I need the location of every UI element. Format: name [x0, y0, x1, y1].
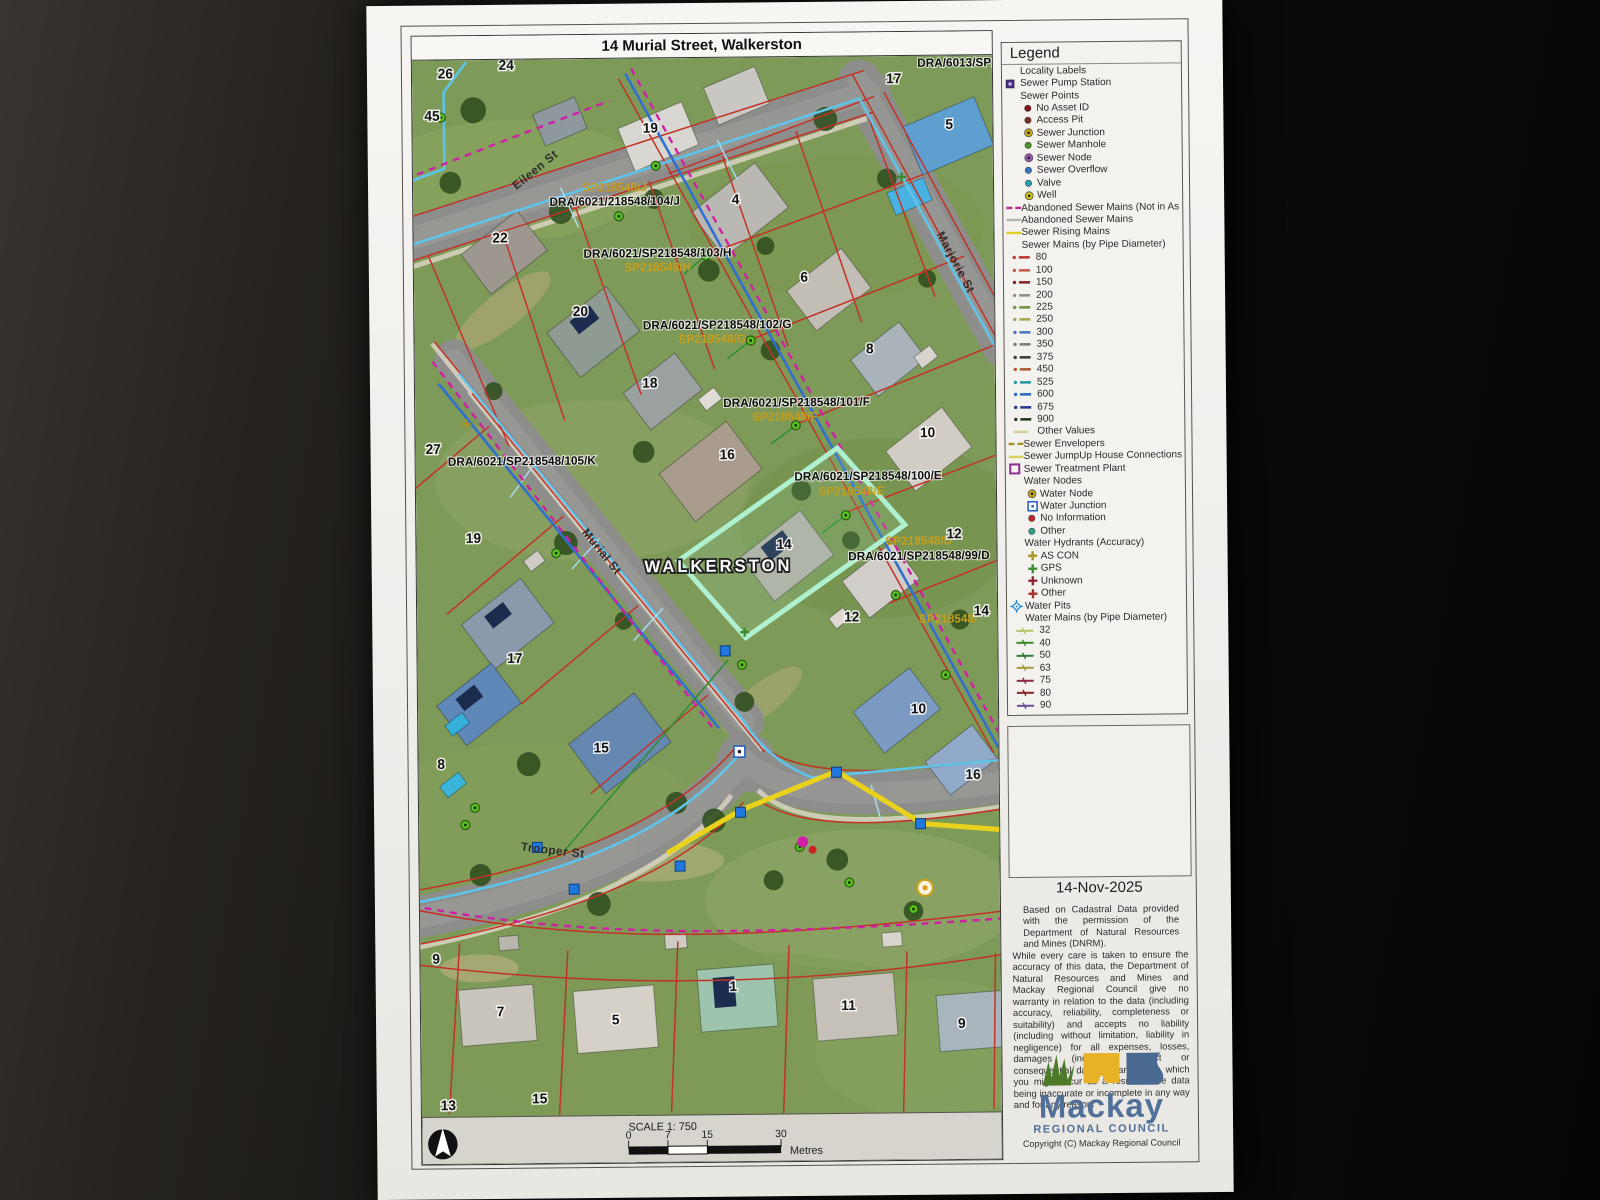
- 675-icon: [1013, 403, 1037, 410]
- gps-icon: [1028, 563, 1041, 573]
- lot-number: 8: [866, 340, 874, 356]
- plan-label: DRA/6013/SP208541/72/R: [917, 55, 1002, 70]
- 525-icon: [1013, 378, 1037, 385]
- lot-number: 10: [911, 700, 927, 716]
- sewer-manhole-marker-center: [848, 881, 851, 884]
- 40-icon: [1015, 639, 1039, 647]
- legend-item-label: No Information: [1040, 513, 1106, 525]
- plan-label: DRA/6021/SP218548/105/K: [448, 453, 597, 469]
- svg-text:SCALE 1: 750: SCALE 1: 750: [628, 1121, 697, 1134]
- unknown-icon: [1028, 576, 1041, 586]
- legend-item-label: Water Mains (by Pipe Diameter): [1025, 611, 1167, 623]
- legend-item-label: 100: [1036, 264, 1053, 275]
- plan-label: SP218548/: [919, 611, 978, 626]
- lot-number: 9: [432, 951, 440, 967]
- legend-item-label: Sewer Manhole: [1037, 139, 1107, 151]
- plan-label: SP218548/E: [818, 484, 884, 499]
- water-junction-icon: [1027, 501, 1040, 512]
- other-icon: [1028, 588, 1041, 598]
- 100-icon: [1012, 266, 1036, 273]
- plan-label: DRA/6021/218548/104/J: [549, 194, 679, 209]
- legend-panel: Legend Locality LabelsSewer Pump Station…: [1001, 40, 1188, 716]
- lot-number: 45: [424, 108, 440, 124]
- water-node-icon: [1027, 489, 1040, 499]
- water-junction-marker: [720, 646, 730, 656]
- disclaimer-cadastral: Based on Cadastral Data provided with th…: [1023, 902, 1179, 949]
- legend-item-label: 250: [1036, 314, 1053, 325]
- lot-number: 16: [965, 766, 981, 782]
- legend-title: Legend: [1002, 41, 1181, 65]
- lot-number: 7: [497, 1003, 505, 1019]
- no-information-icon: [1027, 514, 1040, 523]
- legend-item-label: Water Hydrants (Accuracy): [1024, 537, 1144, 549]
- 375-icon: [1013, 353, 1037, 360]
- lot-number: 17: [886, 70, 902, 86]
- copyright-text: Copyright (C) Mackay Regional Council: [1011, 1137, 1192, 1149]
- legend-item-label: Water Pits: [1025, 600, 1071, 611]
- scale-tick: 15: [701, 1130, 713, 1141]
- water-junction-marker: [831, 767, 841, 777]
- lot-number: 14: [974, 602, 990, 618]
- svg-text:Metres: Metres: [790, 1145, 824, 1157]
- legend-item-label: 63: [1040, 662, 1051, 673]
- 150-icon: [1012, 279, 1036, 286]
- 90-icon: [1016, 701, 1040, 709]
- inset-box: [1007, 724, 1191, 878]
- legend-item-label: Sewer JumpUp House Connections: [1024, 450, 1183, 463]
- legend-item-label: Water Node: [1040, 488, 1093, 500]
- legend-item-label: Sewer Envelopers: [1023, 438, 1104, 450]
- legend-item-label: 75: [1040, 675, 1051, 686]
- legend-item-label: 900: [1037, 414, 1054, 425]
- plan-label: SP218548/J: [582, 180, 647, 195]
- legend-item-label: Valve: [1037, 177, 1061, 188]
- legend-item-label: Abandoned Sewer Mains (Not in As: [1021, 201, 1179, 214]
- other-values-icon: [1013, 429, 1037, 435]
- lot-number: 17: [507, 650, 523, 666]
- 225-icon: [1012, 304, 1036, 311]
- lot-number: 18: [642, 374, 658, 390]
- legend-item-label: 350: [1037, 339, 1054, 350]
- map-date: 14-Nov-2025: [1009, 878, 1190, 897]
- legend-item-label: 40: [1039, 637, 1050, 648]
- 450-icon: [1013, 366, 1037, 373]
- plan-label: SP218548/H: [624, 260, 691, 275]
- sewer-manhole-marker-center: [749, 339, 752, 342]
- 350-icon: [1013, 341, 1037, 348]
- legend-item-label: Water Junction: [1040, 500, 1106, 512]
- lot-number: 10: [920, 424, 936, 440]
- scale-tick: 0: [626, 1130, 632, 1141]
- access-pit-icon: [1023, 116, 1036, 125]
- 250-icon: [1012, 316, 1036, 323]
- abandoned-sewer-mains-not-in-as-icon: [1006, 205, 1021, 211]
- no-asset-id-icon: [1023, 104, 1036, 113]
- legend-item-label: 200: [1036, 289, 1053, 300]
- sewer-manhole-marker-center: [439, 116, 442, 119]
- sewer-overflow-icon: [1024, 166, 1037, 175]
- sewer-manhole-marker-center: [617, 215, 620, 218]
- legend-item-label: Sewer Overflow: [1037, 164, 1108, 176]
- legend-item-label: 375: [1037, 351, 1054, 362]
- legend-item-label: 600: [1037, 389, 1054, 400]
- water-pits-icon: [1010, 599, 1025, 612]
- scanned-map-page: 14 Murial Street, Walkerston: [366, 0, 1233, 1200]
- sewer-manhole-icon: [1024, 141, 1037, 150]
- legend-item-label: AS CON: [1041, 550, 1079, 561]
- sewer-node-icon: [1024, 153, 1037, 163]
- legend-item-label: Access Pit: [1036, 115, 1083, 126]
- sewer-manhole-marker-center: [464, 824, 467, 827]
- 300-icon: [1012, 329, 1036, 336]
- lot-number: 16: [720, 446, 736, 462]
- lot-number: 8: [437, 756, 445, 772]
- lot-number: 26: [438, 65, 454, 81]
- sewer-manhole-marker-center: [794, 424, 797, 427]
- well-icon: [1024, 190, 1037, 200]
- 63-icon: [1016, 664, 1040, 672]
- lot-number: 19: [466, 530, 482, 546]
- aerial-map: Eileen StMarjorie StMurial StTrooper St …: [412, 55, 1003, 1165]
- lot-number: 4: [732, 191, 740, 207]
- legend-item-label: Sewer Rising Mains: [1021, 226, 1109, 238]
- abandoned-sewer-mains-icon: [1006, 217, 1021, 223]
- lot-number: 24: [499, 57, 515, 73]
- lot-number: 20: [573, 303, 589, 319]
- legend-item-label: 150: [1036, 277, 1053, 288]
- sewer-envelopers-icon: [1008, 441, 1023, 447]
- lot-number: 1: [729, 978, 737, 994]
- legend-item-label: Well: [1037, 190, 1056, 201]
- plan-label: DRA/6021/SP218548/102/G: [643, 317, 792, 333]
- sewer-pump-station-icon: [1005, 79, 1020, 89]
- sewer-jumpup-house-connections-icon: [1009, 454, 1024, 460]
- sewer-manhole-marker-center: [741, 663, 744, 666]
- legend-item-label: 80: [1040, 687, 1051, 698]
- lot-number: 12: [946, 525, 962, 541]
- legend-item-label: Unknown: [1041, 575, 1083, 586]
- plan-label: DRA/6021/SP218548/101/F: [723, 394, 870, 410]
- sewer-manhole-marker-center: [555, 552, 558, 555]
- legend-item-label: Other: [1041, 588, 1066, 599]
- lot-number: 19: [643, 119, 659, 135]
- 600-icon: [1013, 391, 1037, 398]
- 50-icon: [1016, 651, 1040, 659]
- council-logo: Mackay REGIONAL COUNCIL Copyright (C) Ma…: [1010, 1050, 1192, 1148]
- logo-flag-blue-icon: [1125, 1051, 1163, 1087]
- scale-tick: 7: [665, 1130, 671, 1141]
- logo-subtitle: REGIONAL COUNCIL: [1011, 1122, 1192, 1136]
- 75-icon: [1016, 676, 1040, 684]
- water-junction-marker: [736, 807, 746, 817]
- lot-number: 27: [426, 441, 442, 457]
- legend-item-label: Sewer Junction: [1036, 127, 1104, 139]
- legend-item-label: GPS: [1041, 563, 1062, 574]
- legend-item-label: 80: [1036, 252, 1047, 263]
- sewer-manhole-marker-center: [894, 594, 897, 597]
- lot-number: 14: [776, 536, 792, 552]
- legend-item-label: 675: [1037, 401, 1054, 412]
- scale-bar: SCALE 1: 750 071530 Metres: [422, 1112, 1002, 1165]
- 80-icon: [1016, 689, 1040, 697]
- plan-label: DRA/6021/SP218548/99/D: [848, 548, 990, 564]
- logo-grass-icon: [1039, 1051, 1077, 1087]
- sewer-manhole-marker-center: [474, 806, 477, 809]
- aerial-map-svg: Eileen StMarjorie StMurial StTrooper St …: [412, 55, 1003, 1165]
- 900-icon: [1013, 416, 1037, 423]
- plan-label: SP218548/D: [885, 533, 952, 548]
- legend-item-label: Sewer Treatment Plant: [1024, 463, 1126, 475]
- legend-item-label: 225: [1036, 302, 1053, 313]
- map-frame: 14 Murial Street, Walkerston: [411, 30, 1004, 1166]
- lot-number: 6: [800, 269, 808, 285]
- lot-number: 12: [844, 608, 860, 624]
- water-junction-marker: [675, 861, 685, 871]
- legend-item-label: Locality Labels: [1020, 65, 1086, 77]
- legend-item-label: Sewer Pump Station: [1020, 77, 1111, 89]
- sewer-manhole-marker-center: [844, 514, 847, 517]
- plan-label: SP218548/F: [752, 409, 818, 424]
- legend-item-label: Abandoned Sewer Mains: [1021, 214, 1133, 226]
- plan-label: DRA/6021/SP218548/103/H: [583, 245, 731, 261]
- lot-number: 13: [441, 1097, 457, 1113]
- valve-icon: [1024, 178, 1037, 187]
- water-junction-marker: [569, 884, 579, 894]
- legend-item-label: 450: [1037, 364, 1054, 375]
- water-junction-marker: [916, 819, 926, 829]
- sewer-manhole-marker-center: [654, 164, 657, 167]
- sewer-manhole-marker-center: [944, 673, 947, 676]
- 80-icon: [1012, 254, 1036, 261]
- other-icon: [1027, 527, 1040, 536]
- lot-number: 9: [958, 1015, 966, 1031]
- legend-item-label: Other Values: [1037, 426, 1095, 438]
- legend-item-label: Sewer Points: [1020, 90, 1079, 102]
- legend-item-label: 300: [1036, 326, 1053, 337]
- locality-label: WALKERSTON: [644, 556, 792, 577]
- plan-label: DRA/6021/SP218548/100/E: [794, 468, 942, 484]
- legend-item-label: 50: [1040, 650, 1051, 661]
- lot-number: 5: [945, 116, 953, 132]
- legend-item-label: 525: [1037, 376, 1054, 387]
- sewer-manhole-marker-center: [912, 908, 915, 911]
- sewer-treatment-plant-icon: [1009, 463, 1024, 475]
- lot-number: 15: [532, 1090, 548, 1106]
- legend-item-label: Water Nodes: [1024, 475, 1082, 487]
- logo-name: Mackay: [1011, 1088, 1192, 1123]
- legend-item-label: 90: [1040, 700, 1051, 711]
- logo-flag-yellow-icon: [1082, 1051, 1120, 1087]
- legend-item-label: 32: [1039, 625, 1050, 636]
- plan-label: SP218548/G: [679, 331, 747, 346]
- as-con-icon: [1028, 551, 1041, 561]
- lot-number: 22: [492, 229, 508, 245]
- legend-item-label: Sewer Node: [1037, 152, 1092, 164]
- 200-icon: [1012, 291, 1036, 298]
- lot-number: 11: [841, 997, 856, 1013]
- lot-number: 15: [594, 739, 610, 755]
- legend-item-label: Sewer Mains (by Pipe Diameter): [1022, 238, 1166, 250]
- legend-item-label: Other: [1040, 525, 1065, 536]
- legend-item-90: 90: [1008, 698, 1187, 712]
- lot-number: 5: [612, 1011, 620, 1027]
- scale-tick: 30: [775, 1129, 787, 1140]
- 32-icon: [1015, 627, 1039, 635]
- sewer-junction-icon: [1023, 128, 1036, 138]
- legend-item-label: No Asset ID: [1036, 102, 1089, 114]
- sewer-rising-mains-icon: [1006, 230, 1021, 236]
